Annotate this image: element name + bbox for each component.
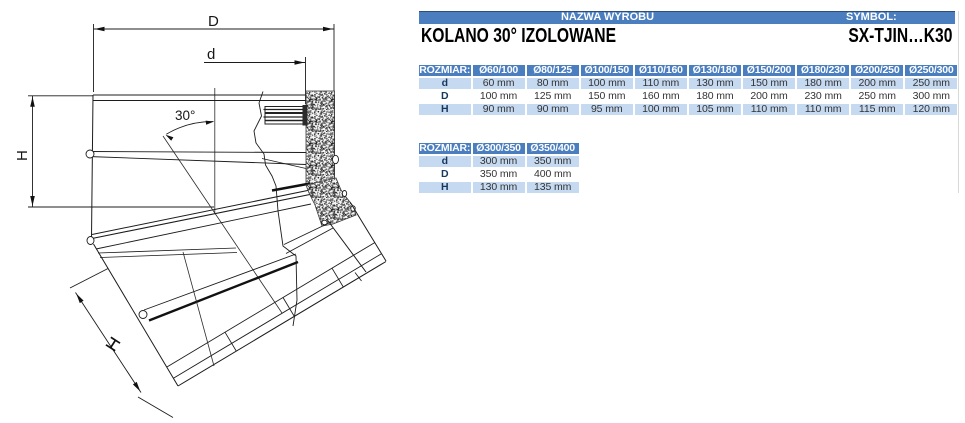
svg-text:D: D	[208, 13, 219, 30]
svg-text:d: d	[207, 46, 215, 63]
svg-text:H: H	[14, 150, 31, 161]
svg-text:30°: 30°	[175, 108, 195, 123]
